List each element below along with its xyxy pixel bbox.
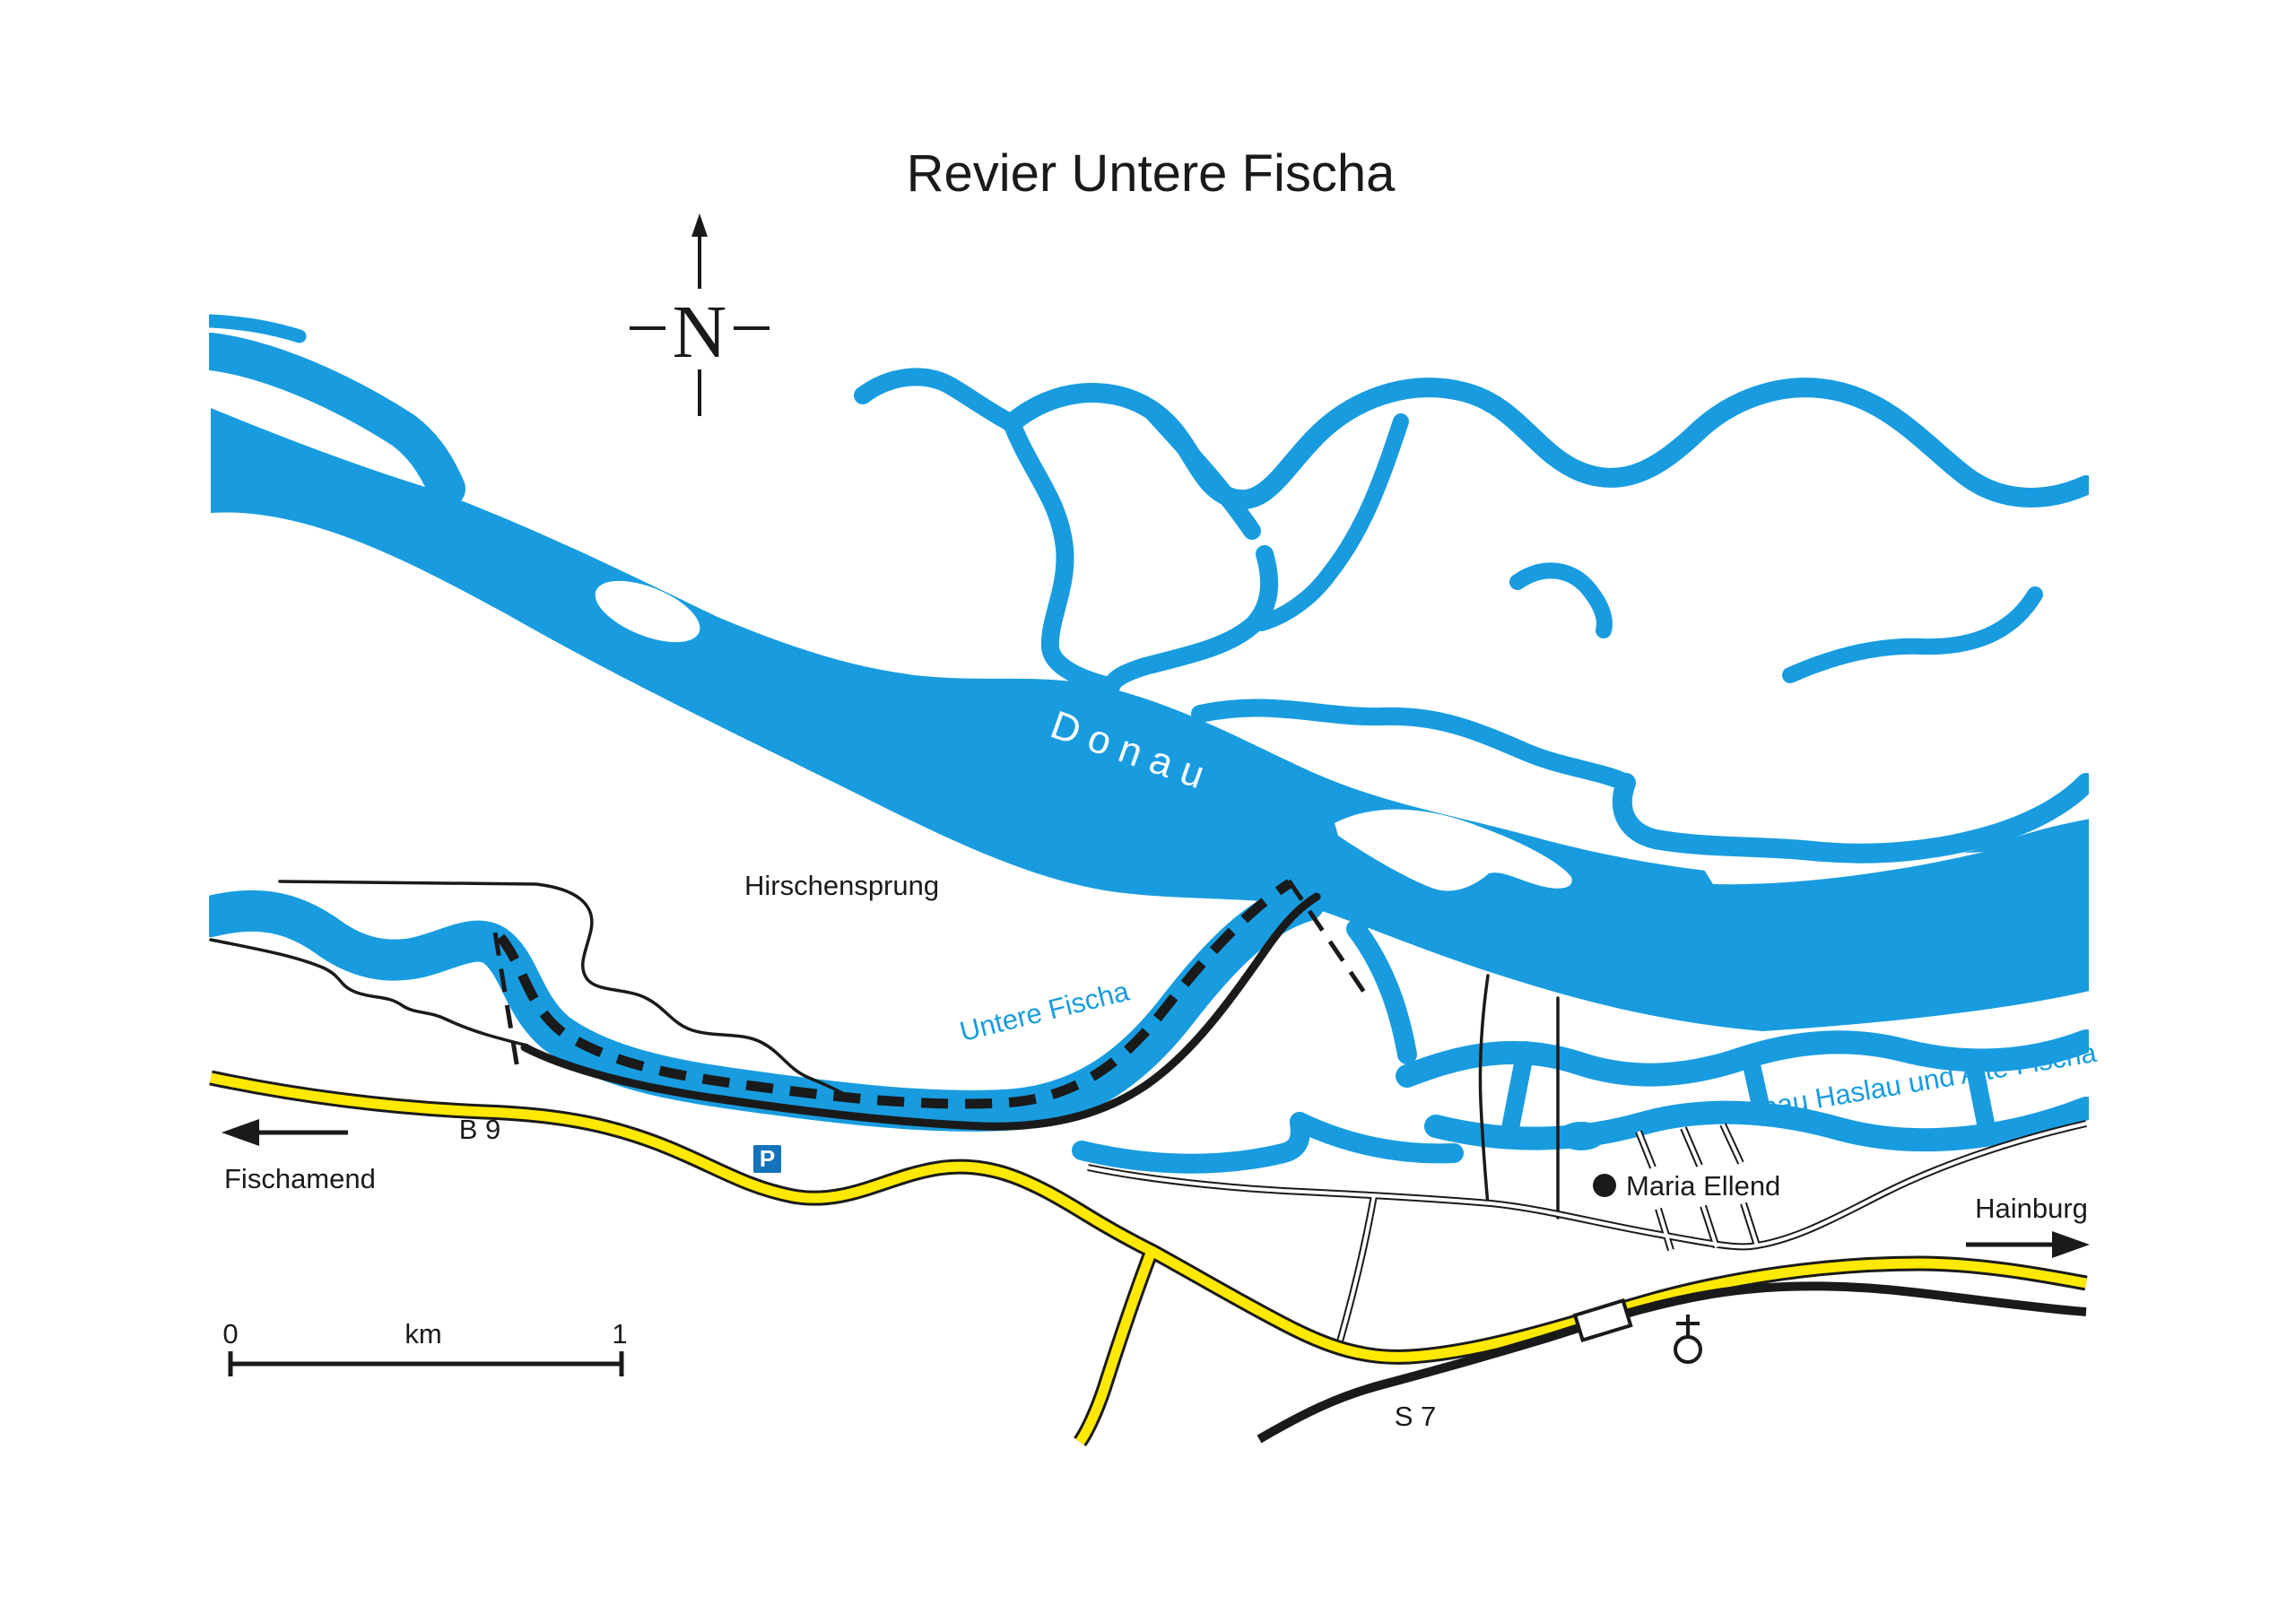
revier-untere-fischa-map: Revier Untere Fischa N Donau Untere Fisc… — [0, 0, 2296, 1623]
maria-ellend-dot — [1593, 1174, 1616, 1197]
map-title: Revier Untere Fischa — [907, 144, 1396, 203]
haslau-inlet — [1356, 929, 1407, 1055]
bridge-symbol — [1575, 1300, 1631, 1340]
side-channel-short-2 — [1790, 595, 2035, 675]
side-channel-short-1 — [1518, 570, 1605, 630]
north-letter: N — [673, 291, 727, 374]
b9-label: B 9 — [459, 1114, 501, 1145]
side-channel-connector-b — [1111, 554, 1269, 687]
side-channel-connector-a — [1150, 409, 1252, 531]
fischamend-label: Fischamend — [224, 1163, 376, 1194]
b9-branch-fill — [1080, 1251, 1152, 1442]
direction-east: Hainburg — [1966, 1193, 2090, 1258]
hainburg-label: Hainburg — [1975, 1193, 2088, 1224]
west-arrow-head — [222, 1119, 259, 1146]
direction-west: Fischamend — [222, 1119, 376, 1194]
scale-bar: 0 km 1 — [222, 1318, 627, 1376]
scale-end-label: 1 — [612, 1318, 627, 1350]
map-page: Revier Untere Fischa N Donau Untere Fisc… — [0, 0, 2296, 1623]
north-compass: N — [630, 213, 770, 416]
village-pond — [1557, 1122, 1605, 1150]
church-icon-circle — [1675, 1337, 1700, 1362]
s7-label: S 7 — [1395, 1401, 1437, 1432]
map-artwork — [211, 321, 2090, 1442]
untere-fischa-river — [211, 901, 1305, 1111]
scale-start-label: 0 — [222, 1318, 238, 1350]
parking-icon-letter: P — [760, 1145, 775, 1172]
side-channel-squiggle-nw — [863, 377, 1012, 423]
track-to-river-west — [1480, 976, 1488, 1205]
church-icon — [1675, 1315, 1700, 1362]
maria-ellend-label: Maria Ellend — [1626, 1170, 1780, 1202]
hirschensprung-label: Hirschensprung — [744, 870, 939, 901]
compass-arrowhead — [691, 213, 708, 237]
fischa-south-stream — [1082, 1122, 1300, 1164]
untere-fischa-label: Untere Fischa — [957, 975, 1133, 1047]
east-arrow-head — [2052, 1231, 2090, 1258]
side-channel-connector-c — [1261, 421, 1401, 623]
parking-icon: P — [753, 1145, 781, 1173]
donau-upper-arm-finger — [211, 321, 300, 336]
scale-unit-label: km — [404, 1318, 441, 1350]
side-channel-loop-west — [1012, 423, 1109, 686]
